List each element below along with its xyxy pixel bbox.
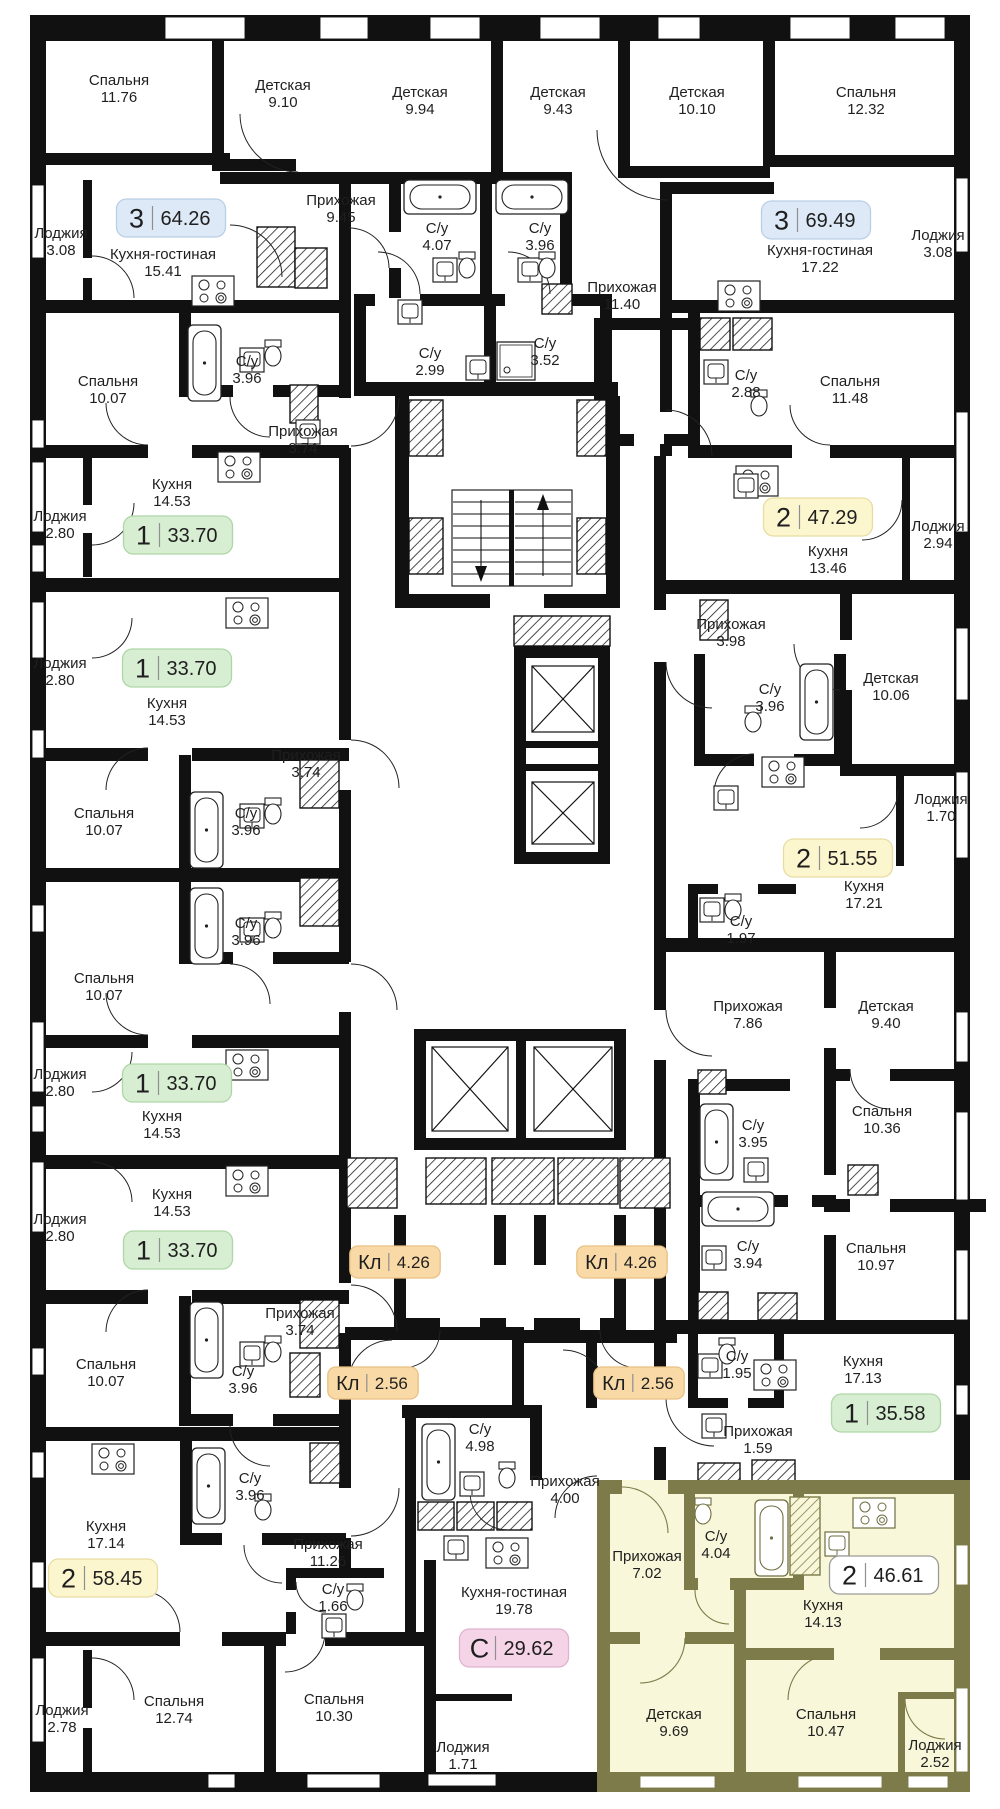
room-name: Спальня [76, 1356, 136, 1373]
elevator-shaft [534, 1047, 612, 1131]
room-area: 1.70 [926, 808, 955, 825]
room-area: 3.95 [738, 1134, 767, 1151]
room-area: 4.00 [550, 1490, 579, 1507]
room-area: 9.94 [405, 101, 434, 118]
apartment-badge[interactable]: 369.49 [762, 201, 871, 239]
room-name: С/у [742, 1117, 765, 1134]
stove-icon [92, 1444, 134, 1474]
elevator-shaft [532, 666, 594, 732]
toilet-icon [265, 912, 281, 938]
room-name: С/у [426, 220, 449, 237]
room-label: С/у4.98 [465, 1421, 494, 1455]
badge-area: 64.26 [161, 208, 211, 230]
room-name: Детская [858, 998, 914, 1015]
apartment-badge[interactable]: Кл2.56 [594, 1367, 684, 1399]
room-area: 3.52 [530, 352, 559, 369]
room-label: С/у3.52 [530, 335, 559, 369]
room-name: С/у [235, 915, 258, 932]
stove-icon [754, 1360, 796, 1390]
bathtub-icon [190, 1302, 223, 1378]
sink-icon [714, 786, 738, 810]
room-area: 11.40 [604, 296, 640, 313]
room-label: Кухня14.53 [142, 1108, 182, 1142]
stove-icon [226, 1050, 268, 1080]
room-area: 2.88 [731, 384, 760, 401]
room-name: Кухня [808, 543, 848, 560]
sink-icon [702, 1246, 726, 1270]
room-area: 7.86 [733, 1015, 762, 1032]
room-name: Кухня [843, 1353, 883, 1370]
room-area: 2.80 [45, 1083, 74, 1100]
sink-icon [322, 1614, 346, 1638]
bathtub-icon [192, 1448, 225, 1524]
room-name: С/у [730, 913, 753, 930]
apartment-badge[interactable]: 133.70 [124, 1231, 233, 1269]
room-name: Детская [863, 670, 919, 687]
room-name: Спальня [304, 1691, 364, 1708]
room-label: С/у3.96 [525, 220, 554, 254]
sink-icon [698, 1354, 722, 1378]
badge-rooms-count: 1 [136, 521, 151, 551]
toilet-icon [265, 340, 281, 366]
sink-icon [466, 356, 490, 380]
room-area: 2.78 [47, 1719, 76, 1736]
sink-icon [444, 1536, 468, 1560]
room-area: 15.41 [144, 263, 182, 280]
room-area: 9.45 [326, 209, 355, 226]
room-name: Кухня-гостиная [110, 246, 216, 263]
room-name: Лоджия [436, 1739, 489, 1756]
room-area: 12.32 [847, 101, 885, 118]
room-label: С/у1.66 [318, 1581, 347, 1615]
room-name: Спальня [89, 72, 149, 89]
badge-area: 33.70 [167, 1073, 217, 1095]
badge-area: 58.45 [93, 1568, 143, 1590]
apartment-badge[interactable]: 247.29 [764, 498, 873, 536]
badge-area: 35.58 [876, 1403, 926, 1425]
room-area: 7.02 [632, 1565, 661, 1582]
badge-rooms-count: 1 [136, 1236, 151, 1266]
room-label: С/у4.04 [701, 1528, 730, 1562]
room-label: Кухня13.46 [808, 543, 848, 577]
room-label: С/у2.99 [415, 345, 444, 379]
room-label: Кухня14.53 [152, 476, 192, 510]
badge-area: 2.56 [375, 1374, 408, 1393]
badge-area: 29.62 [504, 1638, 554, 1660]
room-name: Спальня [74, 970, 134, 987]
sink-icon [460, 1472, 484, 1496]
room-name: С/у [737, 1238, 760, 1255]
room-label: Кухня14.53 [147, 695, 187, 729]
room-area: 17.21 [845, 895, 883, 912]
toilet-icon [499, 1462, 515, 1488]
toilet-icon [265, 798, 281, 824]
stove-icon [853, 1498, 895, 1528]
room-name: Лоджия [33, 1211, 86, 1228]
room-area: 4.04 [701, 1545, 730, 1562]
room-area: 10.36 [863, 1120, 901, 1137]
apartment-badge[interactable]: Кл2.56 [328, 1367, 418, 1399]
badge-rooms-count: Кл [585, 1252, 608, 1274]
toilet-icon [347, 1584, 363, 1610]
room-name: Спальня [74, 805, 134, 822]
room-label: С/у3.96 [231, 915, 260, 949]
room-area: 3.96 [231, 932, 260, 949]
room-name: Лоджия [33, 1066, 86, 1083]
apartment-badge[interactable]: 133.70 [123, 1064, 232, 1102]
room-name: Прихожая [696, 616, 766, 633]
room-area: 9.43 [543, 101, 572, 118]
badge-area: 4.26 [624, 1253, 657, 1272]
room-label: С/у3.96 [228, 1363, 257, 1397]
room-name: Прихожая [271, 747, 341, 764]
room-name: Прихожая [587, 279, 657, 296]
floor-plan: Спальня11.76Детская9.10Детская9.94Детска… [0, 0, 1000, 1809]
toilet-icon [265, 1336, 281, 1362]
room-label: Кухня17.13 [843, 1353, 883, 1387]
room-name: С/у [232, 1363, 255, 1380]
room-area: 1.59 [743, 1440, 772, 1457]
room-area: 3.96 [235, 1487, 264, 1504]
room-name: Спальня [796, 1706, 856, 1723]
room-area: 3.94 [733, 1255, 762, 1272]
highlighted-hatch-wall [790, 1497, 820, 1575]
room-name: Кухня [147, 695, 187, 712]
badge-area: 33.70 [168, 525, 218, 547]
room-area: 1.66 [318, 1598, 347, 1615]
sink-icon [825, 1532, 849, 1556]
sink-icon [734, 474, 758, 498]
room-area: 4.98 [465, 1438, 494, 1455]
apartment-badge[interactable]: 135.58 [832, 1394, 941, 1432]
room-area: 3.96 [232, 370, 261, 387]
room-label: С/у1.97 [726, 913, 755, 947]
room-name: Лоджия [33, 655, 86, 672]
bathtub-icon [190, 888, 223, 964]
room-name: С/у [419, 345, 442, 362]
sink-icon [518, 258, 542, 282]
room-area: 10.10 [678, 101, 716, 118]
room-label: С/у3.96 [755, 681, 784, 715]
room-area: 10.07 [85, 987, 123, 1004]
bathtub-icon [755, 1500, 788, 1576]
room-name: Прихожая [306, 192, 376, 209]
room-name: С/у [726, 1348, 749, 1365]
room-area: 13.46 [809, 560, 847, 577]
room-name: Спальня [836, 84, 896, 101]
room-name: Лоджия [911, 227, 964, 244]
shower-icon [497, 342, 535, 380]
room-name: Детская [392, 84, 448, 101]
badge-rooms-count: 3 [774, 206, 789, 236]
room-area: 10.97 [857, 1257, 895, 1274]
room-name: Прихожая [530, 1473, 600, 1490]
room-name: Кухня-гостиная [461, 1584, 567, 1601]
room-area: 14.53 [153, 493, 191, 510]
room-name: Кухня [803, 1597, 843, 1614]
room-name: Спальня [846, 1240, 906, 1257]
room-area: 3.98 [716, 633, 745, 650]
badge-rooms-count: Кл [602, 1373, 625, 1395]
room-label: Кухня14.53 [152, 1186, 192, 1220]
room-name: Детская [255, 77, 311, 94]
room-area: 11.48 [832, 390, 868, 407]
room-area: 14.13 [804, 1614, 842, 1631]
room-name: С/у [239, 1470, 262, 1487]
toilet-icon [539, 252, 555, 278]
bathtub-icon [404, 180, 476, 214]
room-name: Прихожая [268, 423, 338, 440]
badge-rooms-count: 1 [135, 1069, 150, 1099]
room-area: 1.97 [726, 930, 755, 947]
room-area: 10.07 [85, 822, 123, 839]
badge-rooms-count: Кл [358, 1252, 381, 1274]
apartment-badge[interactable]: С29.62 [460, 1629, 569, 1667]
apartment-badge[interactable]: 133.70 [124, 516, 233, 554]
badge-area: 51.55 [828, 848, 878, 870]
badge-rooms-count: 3 [129, 204, 144, 234]
room-name: С/у [322, 1581, 345, 1598]
sink-icon [700, 898, 724, 922]
sink-icon [398, 300, 422, 324]
room-area: 2.99 [415, 362, 444, 379]
room-area: 10.30 [315, 1708, 353, 1725]
room-name: Прихожая [723, 1423, 793, 1440]
badge-rooms-count: 1 [135, 654, 150, 684]
room-area: 11.26 [310, 1553, 346, 1570]
room-area: 3.96 [525, 237, 554, 254]
badge-area: 46.61 [874, 1565, 924, 1587]
room-area: 1.71 [448, 1756, 477, 1773]
room-name: Кухня [152, 476, 192, 493]
bathtub-icon [800, 664, 833, 740]
room-area: 14.53 [148, 712, 186, 729]
badge-rooms-count: 2 [61, 1564, 76, 1594]
badge-area: 33.70 [168, 1240, 218, 1262]
room-name: Детская [646, 1706, 702, 1723]
room-name: С/у [705, 1528, 728, 1545]
stove-icon [486, 1538, 528, 1568]
badge-area: 33.70 [167, 658, 217, 680]
sink-icon [704, 360, 728, 384]
apartment-badge[interactable]: 251.55 [784, 839, 893, 877]
room-area: 3.96 [231, 822, 260, 839]
room-name: С/у [759, 681, 782, 698]
room-label: С/у3.96 [232, 353, 261, 387]
bathtub-icon [702, 1192, 774, 1226]
room-name: Прихожая [265, 1305, 335, 1322]
room-name: Лоджия [914, 791, 967, 808]
room-area: 19.78 [495, 1601, 533, 1618]
room-area: 3.08 [923, 244, 952, 261]
badge-rooms-count: Кл [336, 1373, 359, 1395]
apartment-badge[interactable]: Кл4.26 [350, 1246, 440, 1278]
room-name: Прихожая [713, 998, 783, 1015]
room-label: Кухня14.13 [803, 1597, 843, 1631]
badge-area: 47.29 [808, 507, 858, 529]
room-area: 11.76 [101, 89, 137, 106]
room-area: 10.47 [807, 1723, 845, 1740]
room-area: 3.74 [288, 440, 317, 457]
room-name: Кухня-гостиная [767, 242, 873, 259]
bathtub-icon [188, 325, 221, 401]
badge-area: 4.26 [397, 1253, 430, 1272]
badge-area: 2.56 [641, 1374, 674, 1393]
room-name: Лоджия [34, 225, 87, 242]
badge-rooms-count: 2 [796, 844, 811, 874]
room-name: Спальня [78, 373, 138, 390]
room-area: 17.22 [801, 259, 839, 276]
room-name: Спальня [144, 1693, 204, 1710]
room-area: 17.14 [87, 1535, 125, 1552]
room-label: С/у4.07 [422, 220, 451, 254]
room-name: С/у [529, 220, 552, 237]
room-area: 2.80 [45, 672, 74, 689]
badge-area: 69.49 [806, 210, 856, 232]
room-name: Кухня [844, 878, 884, 895]
apartment-badge[interactable]: 364.26 [117, 199, 226, 237]
badge-rooms-count: 1 [844, 1399, 859, 1429]
room-name: С/у [469, 1421, 492, 1438]
stove-icon [762, 757, 804, 787]
room-name: С/у [735, 367, 758, 384]
stove-icon [192, 276, 234, 306]
room-name: Прихожая [612, 1548, 682, 1565]
elevator-shaft [432, 1047, 508, 1131]
room-area: 10.06 [872, 687, 910, 704]
elevator-shaft [532, 782, 594, 844]
sink-icon [433, 258, 457, 282]
room-name: Лоджия [911, 518, 964, 535]
room-area: 10.07 [89, 390, 127, 407]
room-label: С/у2.88 [731, 367, 760, 401]
room-area: 2.94 [923, 535, 952, 552]
room-name: С/у [236, 353, 259, 370]
room-name: Детская [669, 84, 725, 101]
room-area: 14.53 [153, 1203, 191, 1220]
room-area: 17.13 [844, 1370, 882, 1387]
room-name: Спальня [852, 1103, 912, 1120]
room-area: 9.40 [871, 1015, 900, 1032]
room-label: С/у3.96 [235, 1470, 264, 1504]
room-area: 3.74 [291, 764, 320, 781]
floor-plan-svg: Спальня11.76Детская9.10Детская9.94Детска… [0, 0, 1000, 1809]
room-area: 9.10 [268, 94, 297, 111]
room-name: Прихожая [293, 1536, 363, 1553]
badge-rooms-count: С [470, 1634, 490, 1664]
room-area: 4.07 [422, 237, 451, 254]
stove-icon [218, 452, 260, 482]
room-name: С/у [235, 805, 258, 822]
apartment-badge[interactable]: 258.45 [49, 1559, 158, 1597]
toilet-icon [695, 1498, 711, 1524]
bathtub-icon [700, 1104, 733, 1180]
badge-rooms-count: 2 [842, 1561, 857, 1591]
room-area: 2.52 [920, 1754, 949, 1771]
room-name: Лоджия [33, 508, 86, 525]
room-name: Кухня [152, 1186, 192, 1203]
room-label: С/у3.96 [231, 805, 260, 839]
room-name: Лоджия [35, 1702, 88, 1719]
room-name: Детская [530, 84, 586, 101]
room-area: 1.95 [722, 1365, 751, 1382]
room-area: 2.80 [45, 1228, 74, 1245]
room-area: 12.74 [155, 1710, 193, 1727]
apartment-badge[interactable]: 133.70 [123, 649, 232, 687]
room-area: 2.80 [45, 525, 74, 542]
room-name: С/у [534, 335, 557, 352]
staircase [452, 490, 572, 586]
apartment-badge[interactable]: 246.61 [830, 1556, 939, 1594]
room-area: 3.96 [755, 698, 784, 715]
room-area: 3.74 [285, 1322, 314, 1339]
badge-rooms-count: 2 [776, 503, 791, 533]
room-area: 3.08 [46, 242, 75, 259]
stove-icon [226, 598, 268, 628]
toilet-icon [459, 252, 475, 278]
bathtub-icon [422, 1424, 455, 1500]
room-label: С/у1.95 [722, 1348, 751, 1382]
room-area: 9.69 [659, 1723, 688, 1740]
room-label: С/у3.94 [733, 1238, 762, 1272]
room-name: Спальня [820, 373, 880, 390]
room-name: Кухня [86, 1518, 126, 1535]
room-label: Кухня17.21 [844, 878, 884, 912]
room-name: Кухня [142, 1108, 182, 1125]
room-area: 3.96 [228, 1380, 257, 1397]
room-label: С/у3.95 [738, 1117, 767, 1151]
bathtub-icon [496, 180, 568, 214]
room-area: 14.53 [143, 1125, 181, 1142]
bathtub-icon [190, 792, 223, 868]
stove-icon [226, 1166, 268, 1196]
apartment-badge[interactable]: Кл4.26 [577, 1246, 667, 1278]
room-label: Кухня17.14 [86, 1518, 126, 1552]
room-name: Лоджия [908, 1737, 961, 1754]
stove-icon [718, 281, 760, 311]
room-area: 10.07 [87, 1373, 125, 1390]
sink-icon [744, 1158, 768, 1182]
